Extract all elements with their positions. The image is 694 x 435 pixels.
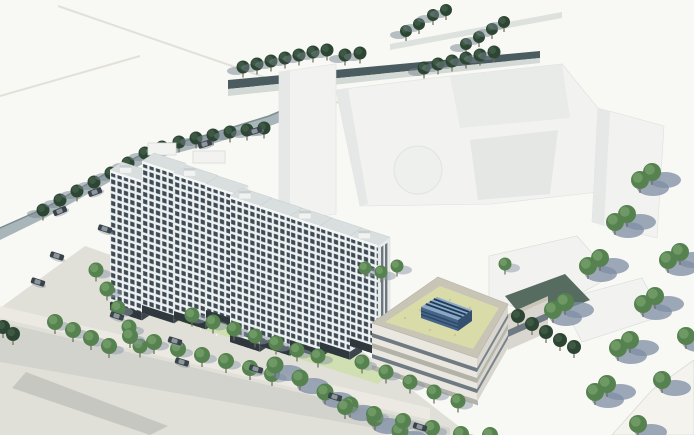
architectural-rendering (0, 0, 694, 435)
low-context-box (148, 143, 176, 155)
tower-facade (290, 216, 320, 358)
low-context-box (193, 151, 225, 163)
tower-facade (260, 206, 290, 356)
massing-round-form (394, 146, 442, 194)
tower-facade (142, 161, 174, 323)
tower-cluster-west (110, 153, 248, 329)
tower-facade (110, 170, 142, 320)
tower-facade (320, 226, 350, 360)
tower-facade (174, 173, 206, 329)
architectural-rendering-canvas (0, 0, 694, 435)
